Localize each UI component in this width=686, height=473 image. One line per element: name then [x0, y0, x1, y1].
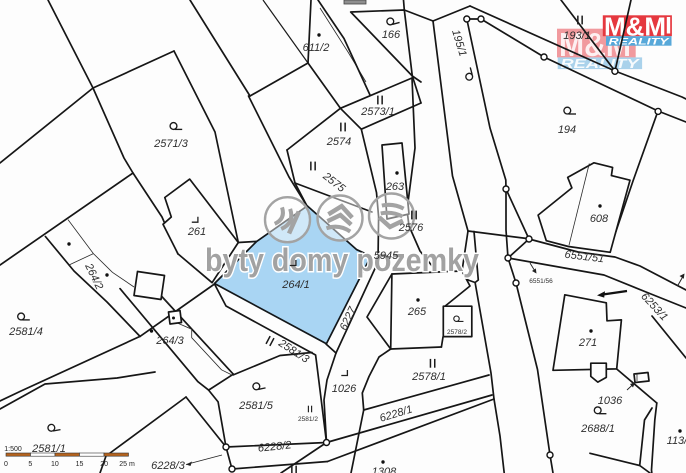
svg-text:5945: 5945	[374, 250, 399, 262]
svg-text:1308: 1308	[372, 466, 397, 473]
svg-text:2573/1: 2573/1	[360, 106, 395, 118]
svg-text:264/3: 264/3	[155, 335, 184, 347]
svg-text:271: 271	[578, 337, 597, 349]
svg-text:1036: 1036	[598, 395, 623, 407]
svg-text:REALITY: REALITY	[561, 56, 641, 71]
svg-text:byty domy pozemky: byty domy pozemky	[205, 242, 479, 278]
svg-text:166: 166	[382, 29, 401, 41]
svg-text:15: 15	[76, 461, 84, 468]
svg-text:113/1: 113/1	[667, 435, 686, 447]
svg-text:20: 20	[100, 461, 108, 468]
svg-text:2576: 2576	[398, 222, 424, 234]
svg-text:2578/2: 2578/2	[447, 329, 467, 336]
svg-text:1:500: 1:500	[4, 446, 22, 453]
svg-text:2571/3: 2571/3	[153, 138, 189, 150]
svg-text:2688/1: 2688/1	[580, 423, 615, 435]
svg-text:10: 10	[51, 461, 59, 468]
svg-text:6228/3: 6228/3	[151, 460, 186, 472]
svg-text:6551/56: 6551/56	[529, 278, 553, 285]
svg-text:2574: 2574	[326, 136, 351, 148]
svg-text:2581/5: 2581/5	[238, 400, 274, 412]
svg-text:265: 265	[407, 306, 427, 318]
svg-text:1026: 1026	[332, 383, 357, 395]
svg-text:2581/2: 2581/2	[298, 416, 318, 423]
svg-text:263: 263	[385, 181, 405, 193]
svg-text:2578/1: 2578/1	[411, 371, 446, 383]
svg-text:25 m: 25 m	[119, 461, 135, 468]
svg-text:261: 261	[187, 226, 206, 238]
svg-text:264/1: 264/1	[281, 279, 310, 291]
svg-text:0: 0	[4, 461, 8, 468]
svg-text:2581/4: 2581/4	[8, 326, 43, 338]
svg-text:5: 5	[28, 461, 32, 468]
svg-text:193/1: 193/1	[563, 30, 591, 42]
svg-text:608: 608	[590, 213, 609, 225]
svg-text:194: 194	[558, 124, 576, 136]
svg-text:REALITY: REALITY	[609, 36, 671, 47]
svg-text:611/2: 611/2	[303, 42, 330, 54]
